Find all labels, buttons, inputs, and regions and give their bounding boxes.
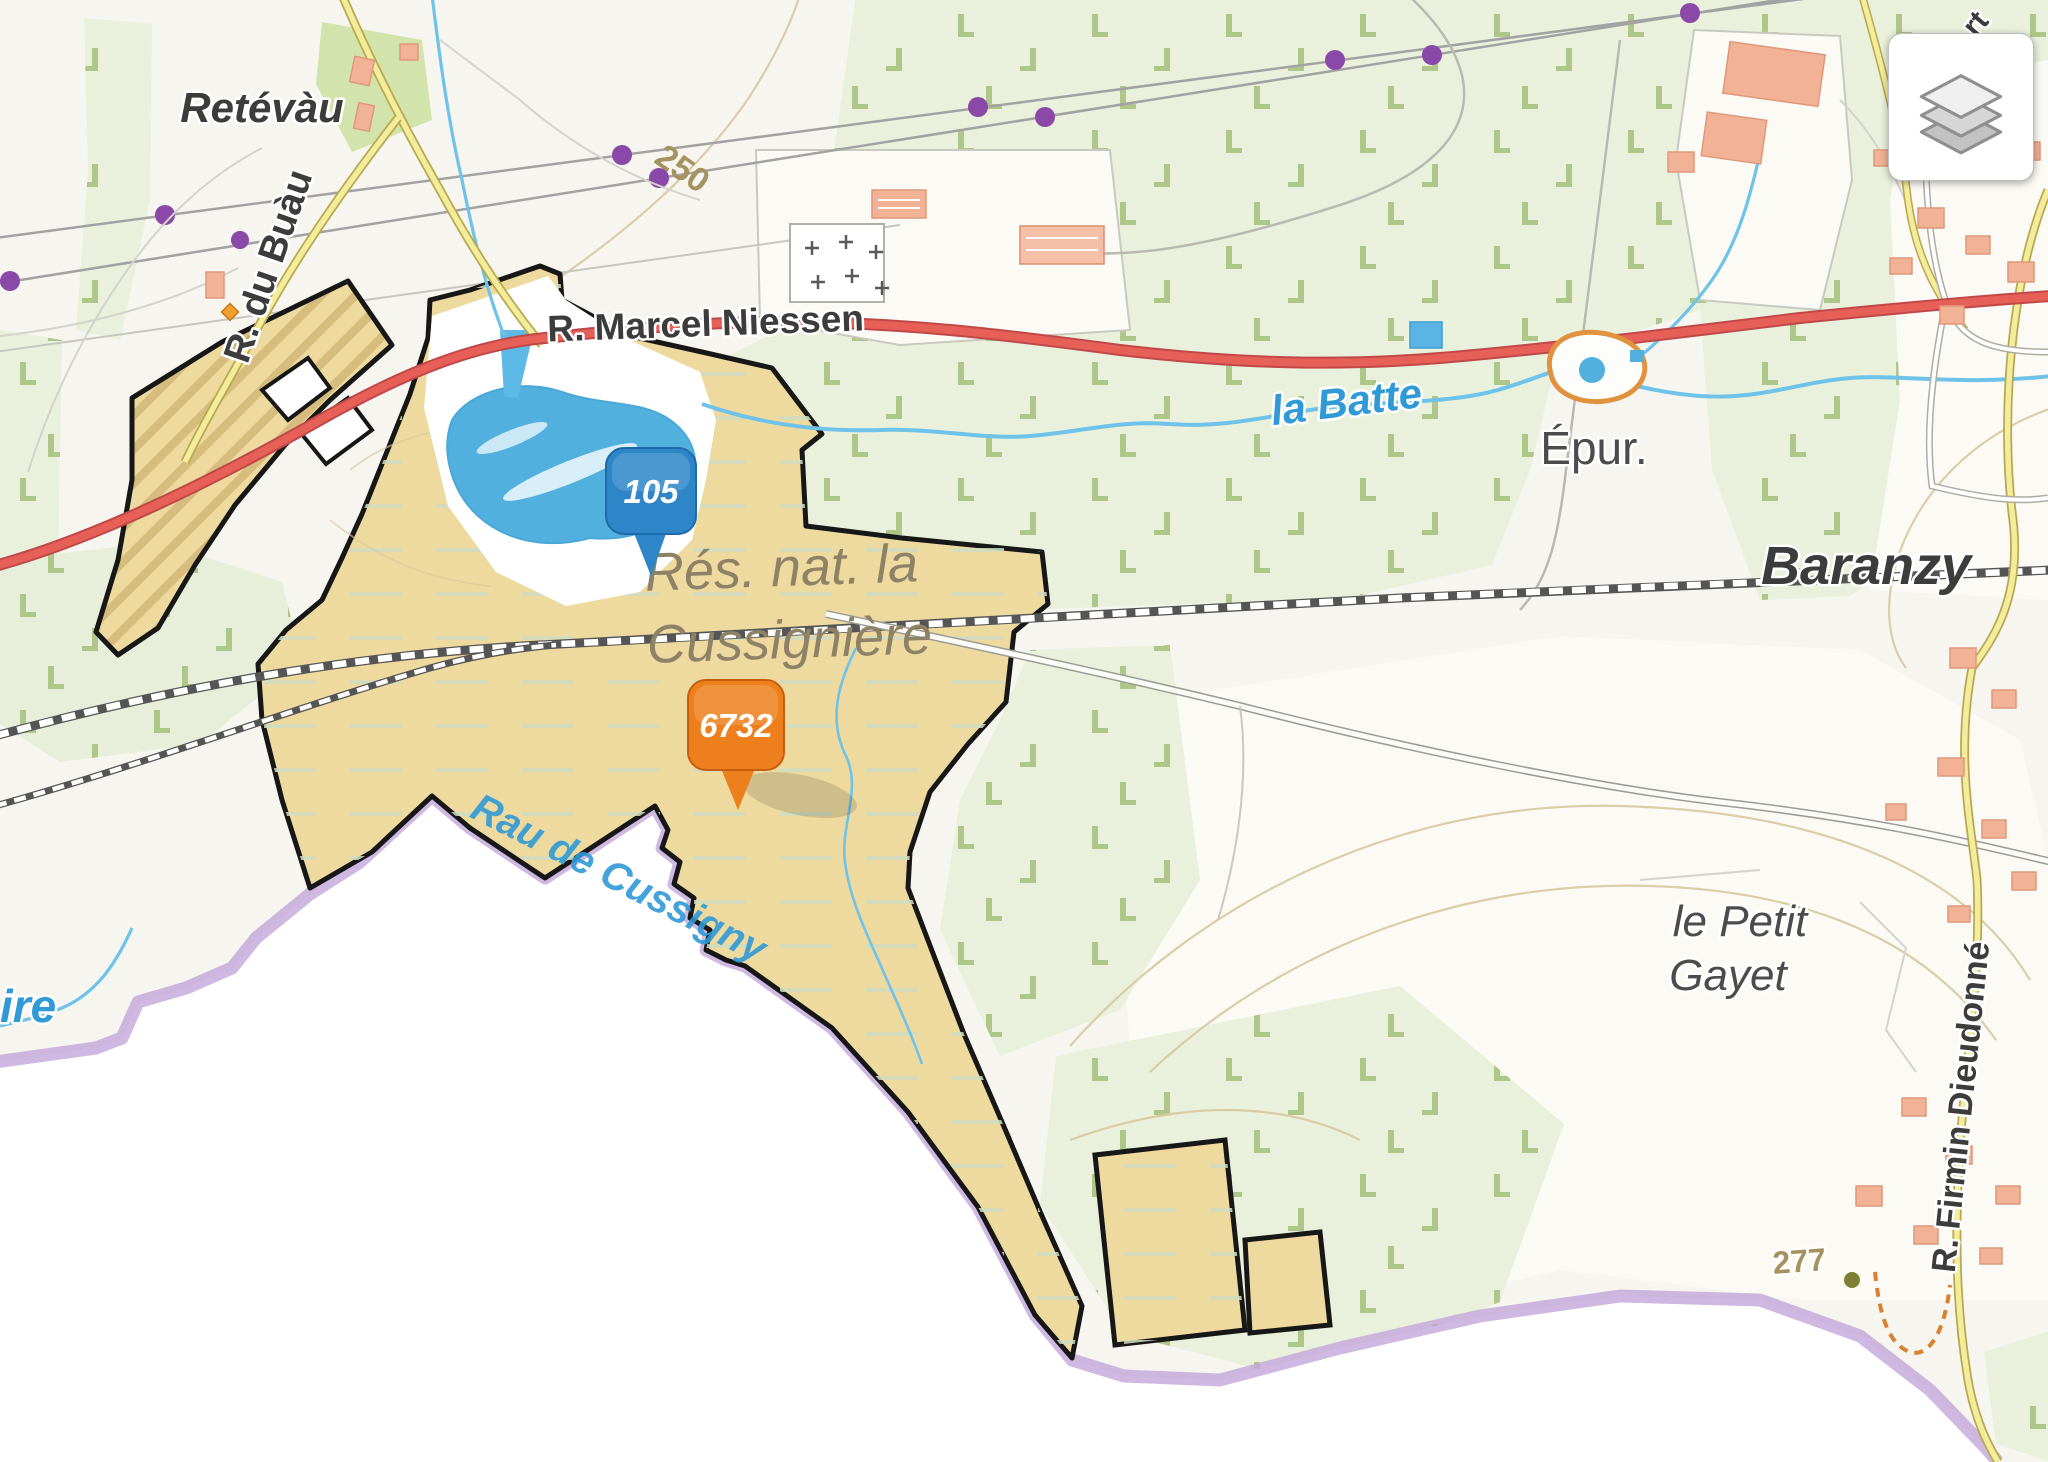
label-petit-gayet-2: Gayet [1669, 951, 1788, 1000]
label-baranzy: Baranzy [1761, 536, 1974, 596]
label-reserve-line2: Cussignière [646, 605, 933, 675]
label-retevau: Retévàu [180, 84, 343, 131]
map-container[interactable]: Retévàu R. du Buàu R. Marcel Niessen la … [0, 0, 2048, 1462]
label-partial-ire: ire [0, 980, 56, 1032]
marker-105-value: 105 [623, 473, 679, 510]
cemetery [790, 224, 889, 302]
label-epur: Épur. [1540, 422, 1647, 474]
spot-height-dot [1844, 1272, 1860, 1288]
label-petit-gayet-1: le Petit [1673, 897, 1809, 946]
treatment-pond [1549, 332, 1644, 401]
layers-button[interactable] [1888, 33, 2034, 181]
label-spot-277: 277 [1771, 1241, 1827, 1281]
marker-6732-value: 6732 [699, 707, 773, 744]
label-reserve-line1: Rés. nat. la [644, 533, 919, 602]
layers-icon [1911, 57, 2011, 157]
map-canvas[interactable]: Retévàu R. du Buàu R. Marcel Niessen la … [0, 0, 2048, 1462]
reserve-parcel-south-2 [1245, 1232, 1330, 1333]
